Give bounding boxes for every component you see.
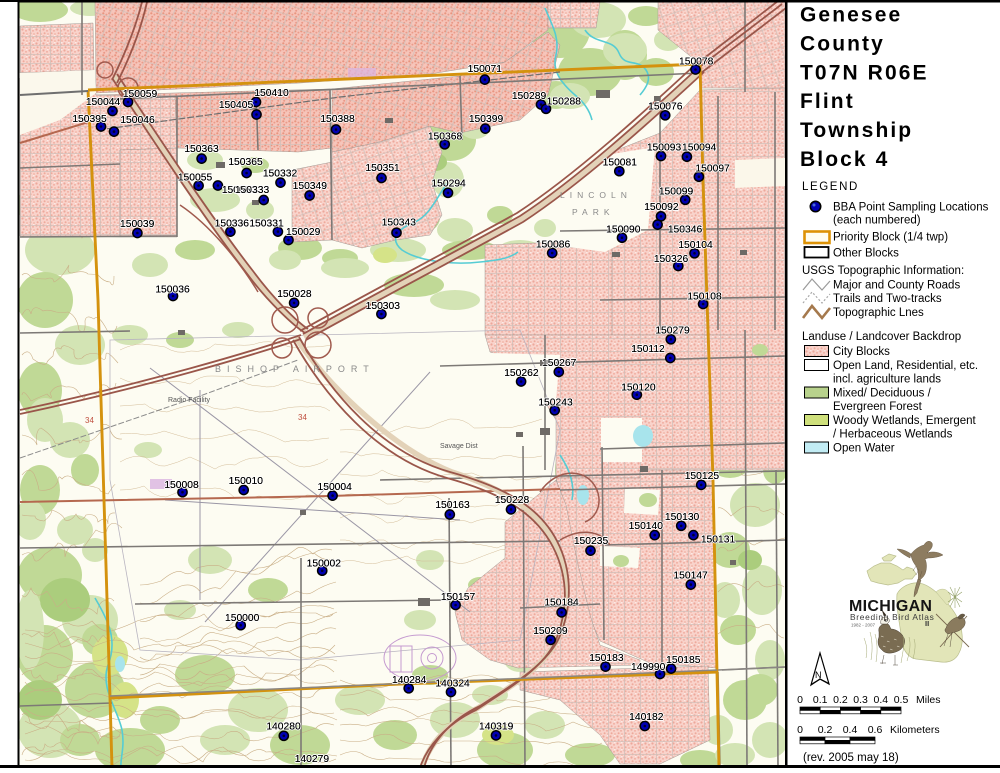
svg-text:150243: 150243 xyxy=(538,397,573,408)
svg-text:150029: 150029 xyxy=(286,227,321,238)
svg-text:34: 34 xyxy=(298,413,307,422)
svg-text:150351: 150351 xyxy=(365,163,400,174)
svg-text:County: County xyxy=(800,32,885,55)
svg-text:T07N R06E: T07N R06E xyxy=(800,61,929,84)
svg-text:Breeding Bird Atlas: Breeding Bird Atlas xyxy=(850,612,935,622)
svg-text:Kilometers: Kilometers xyxy=(890,724,940,736)
svg-text:150059: 150059 xyxy=(123,89,158,100)
svg-text:150046: 150046 xyxy=(120,115,155,126)
svg-text:LEGEND: LEGEND xyxy=(802,181,859,193)
svg-text:150071: 150071 xyxy=(468,64,503,75)
svg-text:Landuse / Landcover Backdrop: Landuse / Landcover Backdrop xyxy=(802,331,961,343)
svg-text:0.6: 0.6 xyxy=(868,724,883,736)
svg-text:(each numbered): (each numbered) xyxy=(833,215,921,227)
svg-text:150363: 150363 xyxy=(184,144,219,155)
svg-text:Radio Facility: Radio Facility xyxy=(168,397,211,404)
svg-text:140324: 140324 xyxy=(435,678,470,689)
svg-text:150279: 150279 xyxy=(655,325,690,336)
svg-text:0.2: 0.2 xyxy=(833,694,848,706)
svg-text:150093: 150093 xyxy=(647,143,682,154)
svg-text:Genesee: Genesee xyxy=(800,4,902,27)
svg-text:0: 0 xyxy=(797,694,803,706)
svg-text:II: II xyxy=(925,619,929,628)
svg-text:150333: 150333 xyxy=(235,185,270,196)
svg-text:Flint: Flint xyxy=(800,90,855,113)
svg-text:(rev. 2005 may 18): (rev. 2005 may 18) xyxy=(803,752,899,764)
svg-text:150094: 150094 xyxy=(682,143,717,154)
svg-text:150343: 150343 xyxy=(382,218,417,229)
svg-text:150130: 150130 xyxy=(665,512,700,523)
svg-text:Major and County Roads: Major and County Roads xyxy=(833,280,960,292)
svg-text:Woody Wetlands, Emergent: Woody Wetlands, Emergent xyxy=(833,415,977,427)
svg-text:0.4: 0.4 xyxy=(843,724,858,736)
svg-text:150410: 150410 xyxy=(254,88,289,99)
svg-text:150147: 150147 xyxy=(673,570,708,581)
svg-text:150331: 150331 xyxy=(249,218,284,229)
svg-text:150209: 150209 xyxy=(533,626,568,637)
svg-text:Block 4: Block 4 xyxy=(800,148,889,171)
svg-text:150076: 150076 xyxy=(648,101,683,112)
svg-text:N: N xyxy=(815,670,822,680)
svg-text:Township: Township xyxy=(800,119,913,142)
svg-text:34: 34 xyxy=(85,416,94,425)
svg-text:150039: 150039 xyxy=(120,219,155,230)
svg-text:LINCOLN: LINCOLN xyxy=(560,190,632,200)
svg-text:150002: 150002 xyxy=(307,558,342,569)
svg-text:150125: 150125 xyxy=(685,471,720,482)
svg-text:incl. agriculture lands: incl. agriculture lands xyxy=(833,374,941,386)
svg-text:150004: 150004 xyxy=(318,482,353,493)
svg-text:150262: 150262 xyxy=(504,368,539,379)
svg-text:Topographic Lnes: Topographic Lnes xyxy=(833,307,924,319)
svg-text:140284: 140284 xyxy=(392,675,427,686)
svg-text:0: 0 xyxy=(797,724,803,736)
svg-text:150120: 150120 xyxy=(621,383,656,394)
svg-text:150112: 150112 xyxy=(631,344,665,355)
svg-text:150086: 150086 xyxy=(536,240,571,251)
svg-text:150184: 150184 xyxy=(544,597,579,608)
svg-text:0.2: 0.2 xyxy=(818,724,833,736)
svg-text:Priority Block (1/4 twp): Priority Block (1/4 twp) xyxy=(833,232,948,244)
svg-text:140280: 140280 xyxy=(266,722,301,733)
svg-text:150368: 150368 xyxy=(428,131,463,142)
svg-text:150294: 150294 xyxy=(431,178,466,189)
svg-text:150388: 150388 xyxy=(320,114,355,125)
svg-text:140279: 140279 xyxy=(295,754,330,765)
svg-text:150028: 150028 xyxy=(277,289,312,300)
svg-text:150185: 150185 xyxy=(666,655,701,666)
svg-text:150078: 150078 xyxy=(679,56,714,67)
svg-text:150099: 150099 xyxy=(659,187,694,198)
svg-text:140319: 140319 xyxy=(479,721,514,732)
svg-text:150140: 150140 xyxy=(629,521,664,532)
svg-text:Other Blocks: Other Blocks xyxy=(833,248,899,260)
svg-text:1982 - 2007: 1982 - 2007 xyxy=(851,623,876,628)
svg-text:149990: 149990 xyxy=(631,662,666,673)
svg-text:150163: 150163 xyxy=(435,500,470,511)
svg-text:City Blocks: City Blocks xyxy=(833,346,890,358)
svg-text:150235: 150235 xyxy=(574,536,609,547)
svg-text:Miles: Miles xyxy=(916,694,941,706)
svg-text:Evergreen Forest: Evergreen Forest xyxy=(833,401,923,413)
svg-text:150090: 150090 xyxy=(606,225,641,236)
svg-text:Savage Dist: Savage Dist xyxy=(440,443,478,450)
svg-text:150336: 150336 xyxy=(215,218,250,229)
svg-text:0.1: 0.1 xyxy=(813,694,828,706)
svg-text:150081: 150081 xyxy=(603,157,638,168)
svg-text:150288: 150288 xyxy=(547,96,582,107)
svg-text:0.5: 0.5 xyxy=(894,694,909,706)
svg-text:USGS Topographic Information:: USGS Topographic Information: xyxy=(802,265,964,277)
svg-text:150365: 150365 xyxy=(228,157,263,168)
svg-text:150104: 150104 xyxy=(678,240,713,251)
svg-text:0.3: 0.3 xyxy=(853,694,868,706)
svg-text:150008: 150008 xyxy=(164,480,199,491)
svg-text:150326: 150326 xyxy=(654,254,689,265)
svg-text:150092: 150092 xyxy=(644,202,679,213)
svg-text:/ Herbaceous Wetlands: / Herbaceous Wetlands xyxy=(833,429,953,441)
svg-text:Open Water: Open Water xyxy=(833,443,895,455)
svg-text:BISHOP AIRPORT: BISHOP AIRPORT xyxy=(215,364,375,374)
svg-text:150349: 150349 xyxy=(293,181,328,192)
svg-text:150000: 150000 xyxy=(225,613,260,624)
svg-text:BBA Point Sampling Locations: BBA Point Sampling Locations xyxy=(833,202,989,214)
svg-text:Mixed/ Deciduous /: Mixed/ Deciduous / xyxy=(833,388,932,400)
svg-text:150346: 150346 xyxy=(668,225,703,236)
svg-text:Open Land, Residential, etc.: Open Land, Residential, etc. xyxy=(833,360,978,372)
svg-text:150228: 150228 xyxy=(495,495,530,506)
svg-text:150289: 150289 xyxy=(512,91,547,102)
svg-text:150108: 150108 xyxy=(687,292,722,303)
svg-text:150097: 150097 xyxy=(695,163,730,174)
svg-text:150157: 150157 xyxy=(441,592,476,603)
svg-text:140182: 140182 xyxy=(629,712,664,723)
svg-text:0.4: 0.4 xyxy=(873,694,888,706)
svg-text:150267: 150267 xyxy=(542,358,577,369)
svg-text:PARK: PARK xyxy=(572,207,615,217)
svg-text:150044: 150044 xyxy=(86,97,121,108)
svg-text:150399: 150399 xyxy=(469,114,504,125)
svg-text:150010: 150010 xyxy=(229,476,264,487)
svg-text:150131: 150131 xyxy=(701,535,736,546)
svg-text:Trails and Two-tracks: Trails and Two-tracks xyxy=(833,293,942,305)
svg-text:150036: 150036 xyxy=(155,284,190,295)
svg-text:150405: 150405 xyxy=(219,100,254,111)
svg-text:150332: 150332 xyxy=(263,169,298,180)
svg-text:150055: 150055 xyxy=(178,173,213,184)
svg-text:150395: 150395 xyxy=(72,114,107,125)
svg-text:150303: 150303 xyxy=(366,301,401,312)
svg-text:150183: 150183 xyxy=(589,653,624,664)
